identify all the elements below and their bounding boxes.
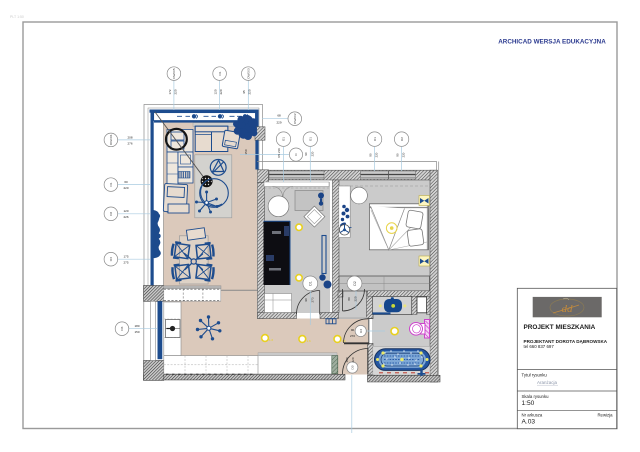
svg-text:D2: D2 (353, 281, 357, 285)
svg-text:220: 220 (354, 296, 358, 301)
svg-text:OW006: OW006 (109, 134, 113, 145)
svg-text:ARCHICAD WERSJA EDUKACYJNA: ARCHICAD WERSJA EDUKACYJNA (498, 39, 606, 46)
svg-text:Aranżacja: Aranżacja (537, 380, 558, 385)
svg-text:220: 220 (123, 186, 128, 190)
svg-text:OW005: OW005 (172, 68, 176, 79)
svg-text:1.6: 1.6 (307, 339, 312, 343)
svg-text:220: 220 (375, 152, 379, 157)
svg-text:O2: O2 (400, 137, 404, 141)
svg-text:80: 80 (347, 297, 351, 301)
svg-text:220: 220 (311, 151, 315, 156)
svg-text:O2: O2 (109, 211, 113, 215)
svg-text:PROJEKT MIESZKANIA: PROJEKT MIESZKANIA (524, 324, 596, 331)
svg-text:D1: D1 (309, 281, 313, 285)
svg-text:tel 660 837 697: tel 660 837 697 (524, 344, 555, 349)
svg-text:D3: D3 (359, 329, 363, 333)
svg-text:150: 150 (134, 330, 139, 334)
svg-text:273: 273 (311, 297, 315, 302)
svg-text:A.03: A.03 (522, 419, 536, 426)
svg-text:276: 276 (127, 142, 132, 146)
svg-text:90: 90 (369, 153, 373, 157)
svg-text:172: 172 (168, 89, 172, 94)
svg-text:Skala rysunku: Skala rysunku (522, 394, 550, 399)
svg-text:Nr arkusza: Nr arkusza (522, 413, 543, 418)
svg-text:220: 220 (402, 152, 406, 157)
svg-text:68: 68 (277, 114, 281, 118)
svg-text:100: 100 (345, 357, 349, 362)
svg-text:O1: O1 (282, 137, 286, 141)
svg-text:150: 150 (244, 149, 248, 154)
svg-text:O1: O1 (218, 71, 222, 75)
svg-text:90: 90 (304, 298, 308, 302)
svg-text:120: 120 (123, 209, 128, 213)
svg-text:O3: O3 (109, 257, 113, 261)
svg-text:220: 220 (351, 357, 355, 362)
svg-text:PLT 1:50: PLT 1:50 (10, 15, 24, 19)
svg-text:220: 220 (219, 89, 223, 94)
svg-text:D3: D3 (351, 365, 355, 369)
svg-text:120: 120 (214, 89, 218, 94)
svg-text:275: 275 (123, 261, 128, 265)
svg-text:270: 270 (350, 334, 355, 338)
svg-text:O1: O1 (309, 137, 313, 141)
svg-text:226: 226 (123, 215, 128, 219)
svg-text:60: 60 (124, 180, 128, 184)
svg-text:90: 90 (304, 152, 308, 156)
svg-text:1:50: 1:50 (522, 400, 535, 407)
svg-text:220: 220 (248, 89, 252, 94)
svg-text:1.6: 1.6 (342, 339, 347, 343)
svg-text:175: 175 (123, 255, 128, 259)
svg-text:O1: O1 (373, 137, 377, 141)
svg-text:180: 180 (134, 324, 139, 328)
svg-text:95: 95 (242, 90, 246, 94)
svg-text:Tytuł rysunku: Tytuł rysunku (522, 373, 548, 378)
svg-text:O1: O1 (109, 182, 113, 186)
svg-text:90: 90 (351, 328, 355, 332)
svg-text:90: 90 (396, 153, 400, 157)
svg-text:1.6: 1.6 (269, 338, 274, 342)
svg-text:OW002: OW002 (293, 113, 297, 124)
svg-text:Rewizja: Rewizja (597, 413, 613, 418)
svg-text:NS 219: NS 219 (277, 148, 281, 158)
svg-text:OW003: OW003 (247, 68, 251, 79)
svg-text:208: 208 (127, 136, 132, 140)
svg-text:O3: O3 (120, 326, 124, 330)
svg-text:229: 229 (276, 121, 281, 125)
svg-text:220: 220 (174, 89, 178, 94)
